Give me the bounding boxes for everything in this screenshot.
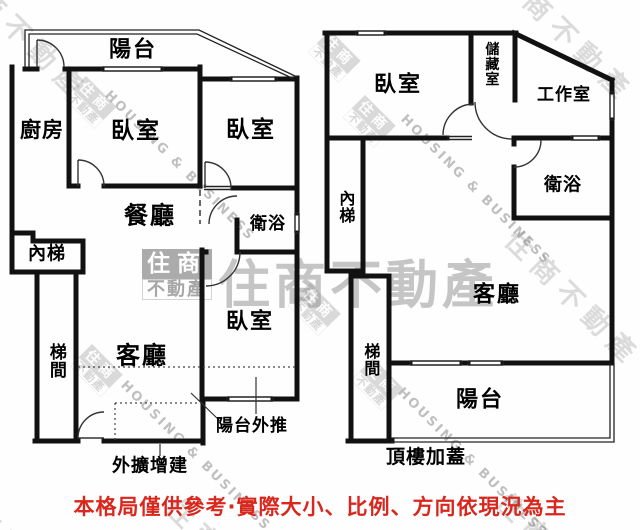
annotation-exterior-addition: 外擴增建 [112, 458, 188, 477]
door-swings [37, 40, 541, 438]
annotation-rooftop-addition: 頂樓加蓋 [386, 448, 466, 468]
walls [12, 33, 612, 443]
disclaimer: 本格局僅供參考·實際大小、比例、方向依現況為主 [0, 491, 640, 521]
floor-plan-image: 住商不動產 住商不動產 住商不動產 住商不動產 住商不動產 住商不動產 HOUS… [0, 0, 640, 530]
room-label-inner-stairs-left: 內梯 [28, 246, 66, 265]
annotation-balcony-pushout: 陽台外推 [216, 418, 288, 436]
room-label-living-room-right: 客廳 [473, 283, 521, 306]
room-label-bathroom-right: 衛浴 [544, 177, 582, 196]
room-label-stairwell-left: 梯間 [46, 343, 64, 379]
floor-plan-linework [0, 0, 640, 530]
room-label-bathroom-left: 衛浴 [250, 216, 286, 234]
balcony-railings [25, 30, 614, 442]
room-label-living-room-left: 客廳 [116, 343, 168, 368]
room-label-bedroom-right: 臥室 [374, 73, 422, 96]
room-label-studio: 工作室 [537, 87, 591, 105]
room-label-bedroom-1: 臥室 [111, 119, 161, 143]
room-label-bedroom-3: 臥室 [226, 310, 274, 333]
room-label-bedroom-2: 臥室 [226, 118, 276, 142]
room-label-kitchen: 廚房 [20, 119, 64, 141]
room-label-stairwell-right: 梯間 [362, 343, 379, 377]
room-label-dining-room: 餐廳 [124, 203, 176, 228]
room-label-inner-stairs-right: 內梯 [337, 190, 354, 224]
room-label-balcony-right: 陽台 [456, 388, 504, 411]
room-label-balcony-left: 陽台 [109, 38, 157, 61]
room-label-storage-room: 儲藏室 [484, 42, 499, 87]
